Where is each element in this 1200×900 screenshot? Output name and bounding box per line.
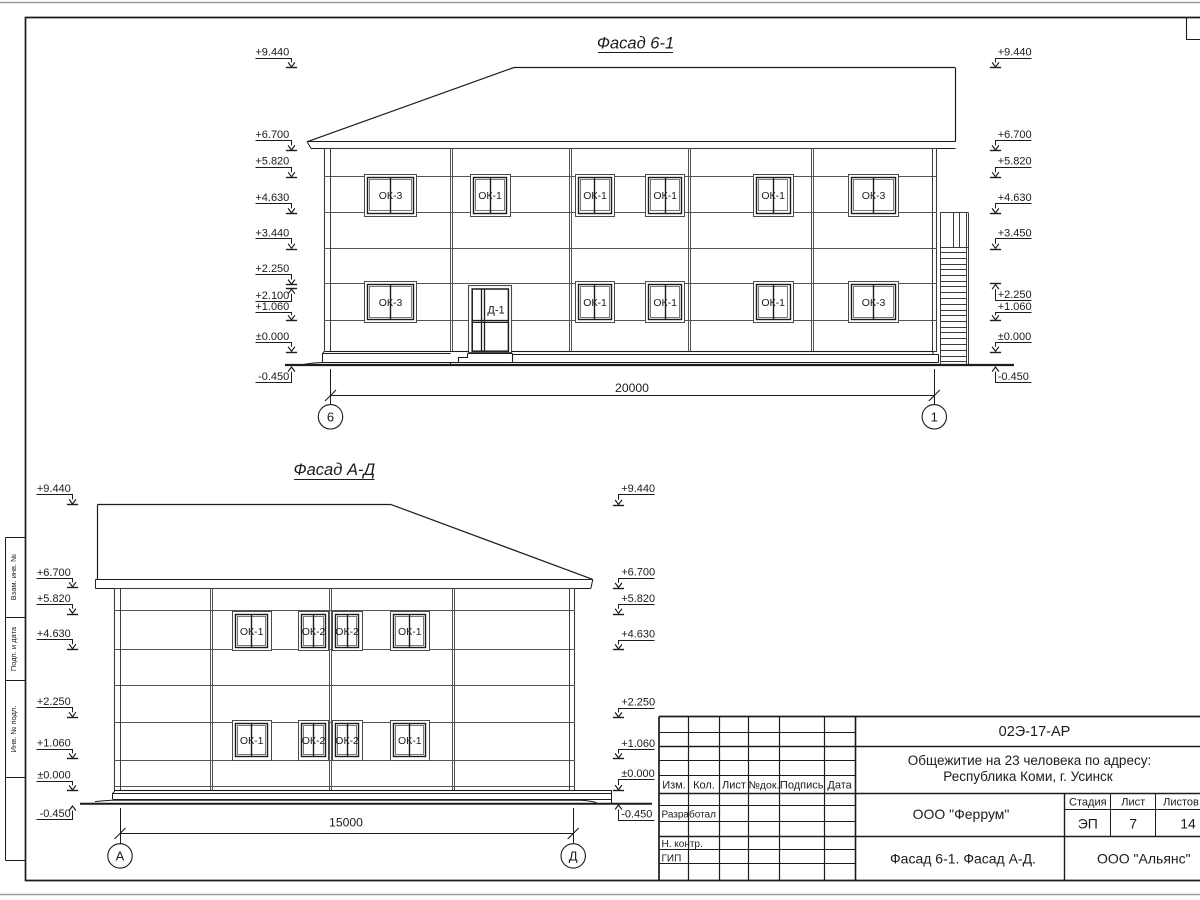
svg-text:±0.000: ±0.000 — [621, 768, 655, 780]
svg-text:Кол.: Кол. — [693, 779, 715, 791]
svg-text:Листов: Листов — [1163, 797, 1199, 809]
svg-text:+9.440: +9.440 — [37, 483, 71, 495]
svg-text:02Э-17-АР: 02Э-17-АР — [999, 724, 1071, 740]
svg-text:±0.000: ±0.000 — [256, 331, 290, 343]
svg-text:Фасад 6-1: Фасад 6-1 — [597, 35, 674, 53]
svg-text:Инв. № подл.: Инв. № подл. — [9, 706, 18, 753]
svg-text:+2.250: +2.250 — [255, 263, 289, 275]
svg-text:-0.450: -0.450 — [40, 808, 71, 820]
svg-text:+4.630: +4.630 — [998, 192, 1032, 204]
svg-text:Лист: Лист — [722, 779, 746, 791]
svg-text:ОК-1: ОК-1 — [653, 297, 677, 309]
svg-text:+6.700: +6.700 — [255, 129, 289, 141]
svg-text:Н. контр.: Н. контр. — [662, 839, 703, 850]
svg-text:Республика Коми, г. Усинск: Республика Коми, г. Усинск — [943, 769, 1113, 784]
svg-text:7: 7 — [1129, 816, 1137, 832]
svg-text:+5.820: +5.820 — [255, 156, 289, 168]
svg-text:14: 14 — [1180, 816, 1196, 832]
svg-text:Подпись: Подпись — [780, 779, 824, 791]
svg-text:Фасад А-Д: Фасад А-Д — [294, 461, 376, 479]
svg-text:ОК-3: ОК-3 — [862, 297, 886, 309]
svg-text:+9.440: +9.440 — [255, 46, 289, 58]
svg-text:ОК-3: ОК-3 — [379, 190, 403, 202]
svg-text:+5.820: +5.820 — [37, 593, 71, 605]
svg-text:+5.820: +5.820 — [621, 593, 655, 605]
svg-text:+2.250: +2.250 — [621, 696, 655, 708]
svg-text:ОК-2: ОК-2 — [335, 626, 359, 638]
svg-text:1: 1 — [931, 409, 938, 424]
svg-text:-0.450: -0.450 — [998, 371, 1029, 383]
svg-text:+9.440: +9.440 — [621, 483, 655, 495]
svg-text:±0.000: ±0.000 — [37, 770, 71, 782]
svg-text:Разработал: Разработал — [662, 809, 717, 821]
svg-text:+1.060: +1.060 — [621, 738, 655, 750]
svg-text:ОК-1: ОК-1 — [653, 190, 677, 202]
svg-text:ООО "Феррум": ООО "Феррум" — [913, 806, 1010, 822]
svg-text:Д: Д — [569, 849, 578, 864]
svg-text:ОК-1: ОК-1 — [761, 297, 785, 309]
svg-text:Фасад 6-1. Фасад А-Д.: Фасад 6-1. Фасад А-Д. — [890, 850, 1036, 866]
svg-text:ОК-2: ОК-2 — [302, 735, 326, 747]
svg-text:ОК-2: ОК-2 — [302, 626, 326, 638]
svg-text:-0.450: -0.450 — [258, 371, 289, 383]
svg-text:ОК-1: ОК-1 — [478, 190, 502, 202]
svg-text:Изм.: Изм. — [662, 779, 686, 791]
svg-text:+2.250: +2.250 — [998, 289, 1032, 301]
svg-text:20000: 20000 — [615, 381, 649, 395]
svg-text:ОК-3: ОК-3 — [862, 190, 886, 202]
svg-text:ОК-2: ОК-2 — [335, 735, 359, 747]
svg-text:ГИП: ГИП — [662, 853, 682, 864]
svg-text:Подп. и дата: Подп. и дата — [9, 626, 18, 671]
svg-text:А: А — [116, 849, 125, 864]
svg-text:ОК-1: ОК-1 — [398, 626, 422, 638]
svg-text:-0.450: -0.450 — [621, 809, 652, 821]
svg-text:№док.: №док. — [749, 779, 780, 791]
svg-text:+5.820: +5.820 — [998, 156, 1032, 168]
svg-text:ОК-1: ОК-1 — [240, 735, 264, 747]
svg-text:Стадия: Стадия — [1069, 797, 1107, 809]
svg-text:+3.450: +3.450 — [998, 227, 1032, 239]
svg-text:±0.000: ±0.000 — [998, 331, 1032, 343]
svg-text:Лист: Лист — [1121, 797, 1145, 809]
svg-text:+6.700: +6.700 — [621, 566, 655, 578]
svg-text:+6.700: +6.700 — [37, 567, 71, 579]
svg-text:ОК-1: ОК-1 — [240, 626, 264, 638]
svg-text:+2.250: +2.250 — [37, 696, 71, 708]
svg-text:6: 6 — [327, 409, 334, 424]
svg-text:+3.440: +3.440 — [255, 227, 289, 239]
svg-text:15000: 15000 — [329, 815, 363, 829]
svg-text:ЭП: ЭП — [1078, 816, 1098, 832]
svg-text:+4.630: +4.630 — [37, 628, 71, 640]
svg-text:ОК-1: ОК-1 — [583, 297, 607, 309]
svg-text:ОК-1: ОК-1 — [398, 735, 422, 747]
svg-text:+6.700: +6.700 — [998, 129, 1032, 141]
svg-text:Дата: Дата — [827, 779, 852, 791]
svg-text:+1.060: +1.060 — [998, 301, 1032, 313]
svg-text:+4.630: +4.630 — [621, 628, 655, 640]
svg-text:ОК-3: ОК-3 — [379, 297, 403, 309]
svg-text:Общежитие на 23 человека по ад: Общежитие на 23 человека по адресу: — [908, 753, 1151, 768]
svg-text:ООО "Альянс": ООО "Альянс" — [1097, 850, 1191, 866]
svg-text:+9.440: +9.440 — [998, 46, 1032, 58]
svg-text:Взам. инв. №: Взам. инв. № — [9, 554, 18, 600]
svg-text:+1.060: +1.060 — [37, 738, 71, 750]
svg-text:+1.060: +1.060 — [255, 301, 289, 313]
svg-text:+4.630: +4.630 — [255, 192, 289, 204]
svg-text:Д-1: Д-1 — [487, 305, 504, 317]
svg-text:ОК-1: ОК-1 — [583, 190, 607, 202]
svg-text:ОК-1: ОК-1 — [761, 190, 785, 202]
